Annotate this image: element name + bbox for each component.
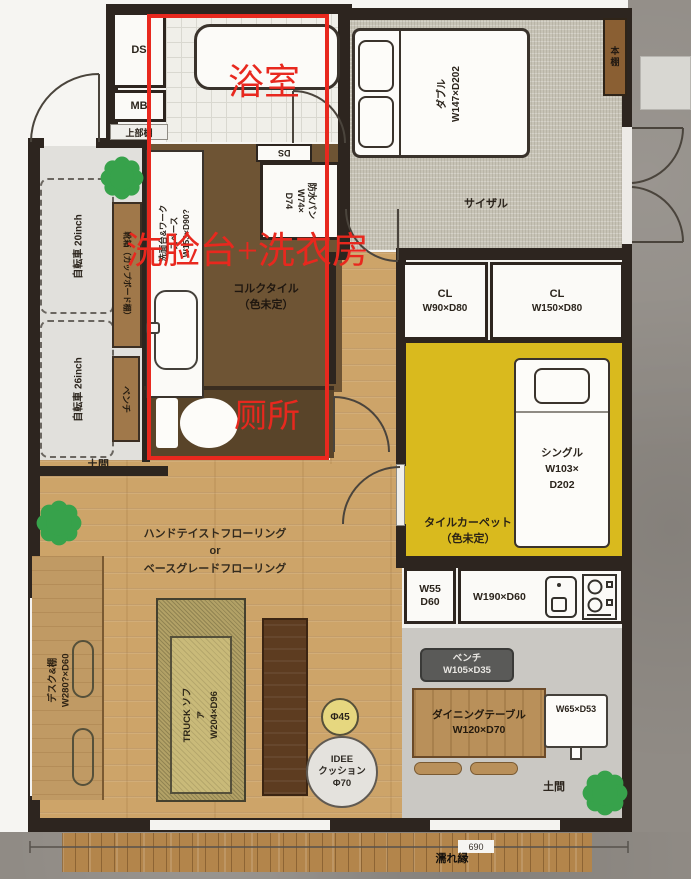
book-shelf-label: 本棚	[609, 46, 622, 68]
closet-2-size: W150×D80	[532, 303, 582, 314]
wall	[28, 138, 44, 148]
round-stool-label: Φ45	[330, 712, 349, 723]
dining-doma-label: 土間	[532, 778, 576, 794]
doma-text: 土間	[87, 456, 109, 472]
kitchen-counter-main: W190×D60	[458, 568, 624, 624]
porch-step	[640, 56, 691, 110]
pillow-icon	[534, 368, 590, 404]
deck	[62, 833, 592, 872]
flooring-labelwrap: ハンドテイストフローリング or ベースグレードフローリング	[100, 520, 330, 584]
annotation-washroom: 洗脸台+洗衣房	[126, 233, 369, 270]
kitchen-counter-small: W55 D60	[404, 568, 456, 624]
deck-label-text: 濡れ縁	[436, 850, 469, 866]
sofa-label: TRUCK ソファ W204×D96	[181, 686, 221, 744]
annotation-toilet: 厕所	[234, 401, 300, 434]
closet-1-size: W90×D80	[423, 303, 468, 314]
entry-bench: ベンチ	[112, 356, 140, 442]
tree-icon	[582, 770, 628, 816]
book-shelf: 本棚	[603, 18, 627, 96]
tile-carpet-labelwrap: タイルカーペット （色未定）	[404, 510, 532, 554]
bicycle-26-label: 自転車 26inch	[70, 357, 85, 421]
closet-1-name: CL	[438, 288, 453, 300]
duct-space-label: DS	[131, 44, 146, 56]
bicycle-space-26: 自転車 26inch	[40, 320, 114, 458]
single-bed-labelwrap: シングル W103× D202	[518, 428, 606, 512]
doorway-opening	[622, 127, 632, 244]
entry-bench-label: ベンチ	[120, 385, 133, 412]
double-bed-label: ダブル W147×D202	[436, 66, 464, 122]
window	[150, 820, 330, 830]
dining-stool	[414, 762, 462, 775]
side-counter: W65×D53	[544, 694, 608, 748]
exterior-right	[628, 0, 691, 879]
wall	[340, 8, 632, 20]
single-bed-divider	[516, 411, 608, 413]
desk-chair	[72, 728, 94, 786]
side-counter-stool	[570, 746, 582, 760]
wall	[396, 248, 632, 260]
side-counter-label: W65×D53	[556, 704, 596, 714]
bicycle-20-label: 自転車 20inch	[70, 214, 85, 278]
sink-icon	[546, 577, 576, 617]
tree-icon	[100, 156, 144, 200]
kitchen-icons	[543, 572, 619, 622]
desk-label: デスク&棚 W280?×D60	[47, 653, 74, 707]
bed-divider	[399, 30, 401, 156]
sofa: TRUCK ソファ W204×D96	[170, 636, 232, 794]
wall	[402, 556, 632, 568]
closet-2-name: CL	[550, 288, 565, 300]
window	[430, 820, 560, 830]
shoe-shelf: 靴箱（カップボード棚）	[112, 202, 142, 348]
desk-chair	[72, 640, 94, 698]
floor-cushion-label: IDEE クッション Φ70	[318, 754, 366, 790]
entry-door-arc	[31, 74, 99, 142]
pillow-icon	[358, 40, 394, 92]
doma-text: 土間	[543, 778, 565, 794]
dining-bench-label: ベンチ W105×D35	[443, 653, 491, 678]
door-leaf	[396, 464, 405, 526]
dining-bench: ベンチ W105×D35	[420, 648, 514, 682]
floor-cushion: IDEE クッション Φ70	[306, 736, 378, 808]
tree-icon	[36, 500, 82, 546]
closet-2: CL W150×D80	[490, 262, 624, 340]
annotation-bathroom: 浴室	[228, 64, 300, 100]
kitchen-counter-small-label: W55 D60	[419, 583, 441, 609]
deck-label: 濡れ縁	[420, 850, 484, 865]
pillow-icon	[358, 96, 394, 148]
sisal-label: サイザル	[448, 194, 524, 212]
stove-icon	[583, 575, 616, 619]
floor-plan: DS MB 上部棚 自転車 20inch 自転車 26inch 靴箱（カップボー…	[0, 0, 691, 879]
dining-table: ダイニングテーブル W120×D70	[412, 688, 546, 758]
coffee-table	[262, 618, 308, 796]
dining-table-label: ダイニングテーブル W120×D70	[432, 708, 526, 737]
meter-box-label: MB	[130, 100, 147, 112]
dining-stool	[470, 762, 518, 775]
kitchen-counter-main-label: W190×D60	[473, 591, 526, 603]
double-bed-labelwrap: ダブル W147×D202	[415, 35, 485, 153]
round-stool: Φ45	[321, 698, 359, 736]
single-bed-label: シングル W103× D202	[541, 446, 583, 493]
sisal-text: サイザル	[464, 195, 508, 211]
entry-doma-label: 土間	[76, 456, 120, 472]
closet-1: CL W90×D80	[402, 262, 488, 340]
tile-carpet-label: タイルカーペット （色未定）	[424, 516, 512, 548]
flooring-label: ハンドテイストフローリング or ベースグレードフローリング	[144, 526, 287, 579]
